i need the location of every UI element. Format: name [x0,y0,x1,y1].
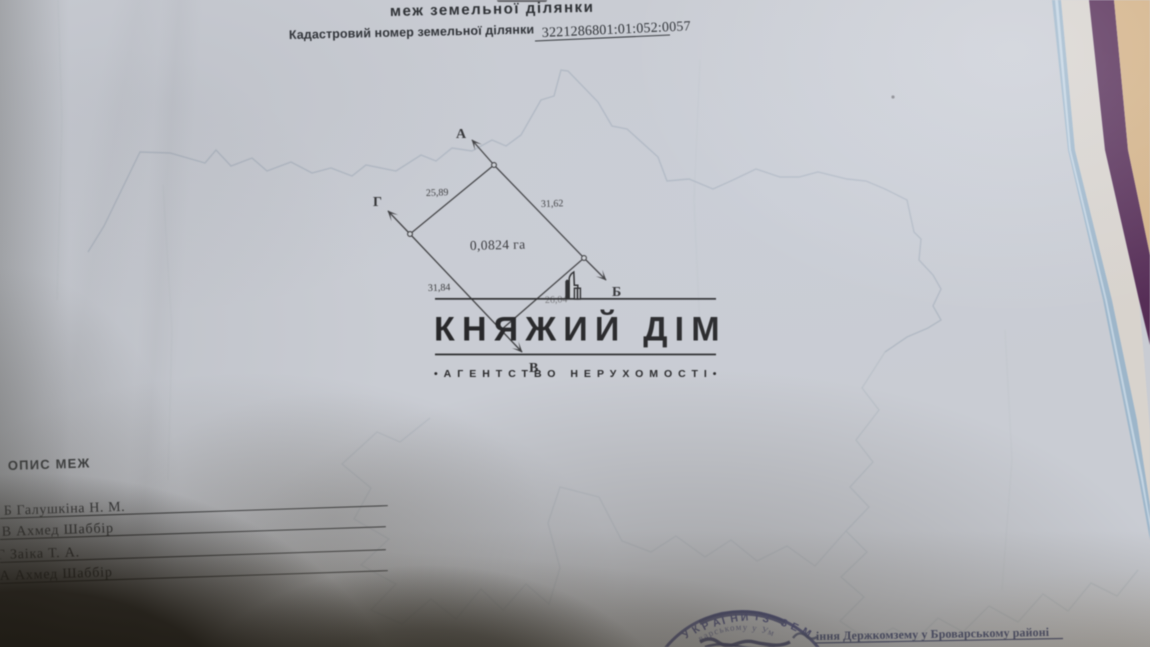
svg-text:меж земельної ділянки: меж земельної ділянки [390,0,595,20]
svg-text:КНЯЖИЙ ДІМ: КНЯЖИЙ ДІМ [434,310,727,349]
svg-text:26,04: 26,04 [545,294,568,306]
svg-text:25,89: 25,89 [426,187,449,199]
svg-text:Г: Г [373,195,382,210]
svg-text:31,84: 31,84 [428,282,451,294]
svg-text:•АГЕНТСТВО НЕРУХОМОСТІ•: •АГЕНТСТВО НЕРУХОМОСТІ• [434,368,722,380]
svg-text:Е: Е [789,620,801,634]
svg-text:0,0824 га: 0,0824 га [470,237,526,253]
svg-text:Б: Б [612,285,621,300]
svg-text:А: А [456,127,467,142]
svg-text:31,62: 31,62 [541,198,564,210]
svg-text:ОПИС МЕЖ: ОПИС МЕЖ [8,455,91,473]
svg-text:І: І [755,611,759,623]
svg-text:Кадастровий номер земельної ді: Кадастровий номер земельної ділянки [289,22,535,42]
